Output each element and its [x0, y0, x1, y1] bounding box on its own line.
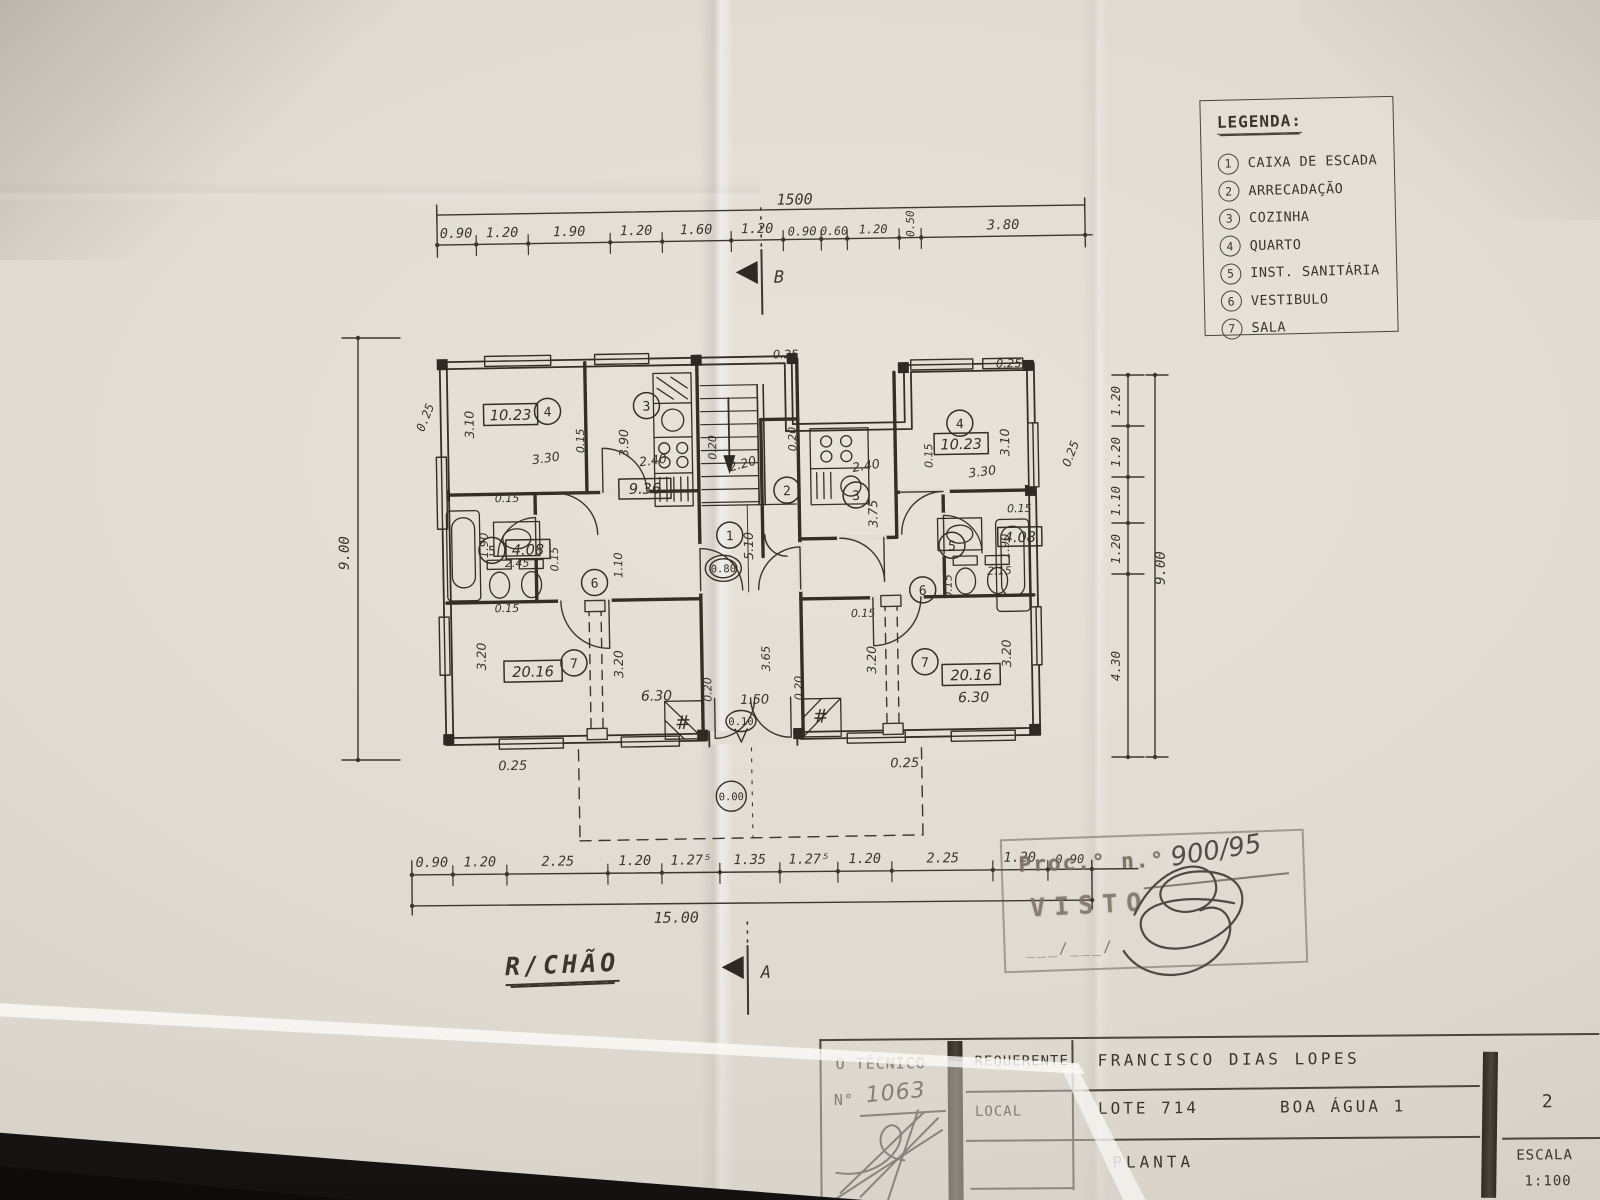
dim-label: 4.30 — [1108, 651, 1123, 681]
dim-label: 0.15 — [495, 492, 520, 505]
dim-label: 0.20 — [701, 677, 714, 702]
floor-label: R/CHÃO — [504, 948, 620, 986]
dim-label: 2.15 — [987, 564, 1012, 577]
room-area: 9.36 — [629, 481, 662, 498]
dim-label: 1.50 — [740, 693, 769, 709]
legend-item-label: SALA — [1251, 319, 1286, 336]
dim-label: 0.25 — [996, 356, 1022, 370]
legend-item: 6 VESTIBULO — [1221, 287, 1397, 312]
dim-label: 3.65 — [759, 646, 773, 672]
dim-label: 1.20 — [620, 223, 653, 240]
level-value: 0.00 — [719, 791, 745, 803]
room-number: 5 — [948, 539, 956, 554]
plan-dimension-labels: 3.10 0.15 3.30 3.90 2.40 0.15 1.90 2.45 … — [461, 342, 1088, 779]
dim-label: 0.15 — [495, 602, 520, 615]
dim-label: 0.90 — [440, 226, 473, 243]
room-number: 4 — [956, 417, 964, 432]
dim-label: 0.15 — [1007, 502, 1032, 515]
dim-label: 0.60 — [820, 224, 848, 238]
dim-label: 1.20 — [741, 221, 774, 238]
dim-label: 0.25 — [890, 756, 919, 772]
dim-label: 0.20 — [706, 435, 719, 460]
dim-label: 3.75 — [865, 500, 880, 528]
requerente-value: FRANCISCO DIAS LOPES — [1097, 1049, 1360, 1070]
dim-label: 9.00 — [1153, 551, 1169, 585]
right-dimension-chain: 1.20 1.20 1.10 1.20 4.30 9.00 — [1108, 373, 1169, 759]
dim-label: 0.15 — [574, 428, 587, 453]
dim-label: 2.40 — [851, 456, 881, 475]
legend-item: 7 SALA — [1221, 314, 1397, 339]
dim-label: 1.27⁵ — [788, 851, 829, 867]
room-number: 3 — [852, 489, 860, 504]
legend-item-number: 7 — [1221, 318, 1242, 339]
room-area: 10.23 — [940, 437, 982, 454]
room-area: 20.16 — [950, 668, 992, 685]
title-block-right-bar — [1481, 1052, 1498, 1198]
top-dimension-chain: 1500 0.90 1.20 1.90 1.20 1.60 1.20 0.90 … — [434, 186, 1093, 319]
dim-label: 0.15 — [851, 607, 876, 620]
scale-value: 1:100 — [1524, 1173, 1571, 1189]
dim-label: 9.00 — [337, 536, 353, 570]
dim-label: 0.90 — [788, 224, 817, 238]
hatch-hash: # — [675, 712, 691, 734]
dim-label: 6.30 — [641, 688, 673, 705]
dim-label: 1.10 — [1108, 486, 1123, 516]
dim-label: 3.30 — [967, 462, 996, 480]
legend-item: 3 COZINHA — [1219, 204, 1395, 229]
room-area: 20.16 — [512, 664, 554, 681]
dim-label: 0.90 — [415, 855, 448, 871]
dim-label: 1.20 — [1108, 386, 1123, 416]
legend-item-label: VESTIBULO — [1251, 291, 1329, 309]
dim-label: 0.25 — [773, 347, 799, 361]
dim-label: 3.10 — [997, 428, 1012, 456]
legend-item-number: 4 — [1219, 235, 1240, 256]
dim-label: 3.10 — [462, 411, 477, 439]
dim-label: 2.25 — [926, 850, 959, 866]
stamp-date-line: ___/___/ — [1025, 937, 1114, 958]
legend-item-number: 3 — [1219, 208, 1240, 229]
dim-label: 1500 — [776, 190, 812, 209]
level-value: 0.10 — [728, 716, 754, 728]
sheet-number: 2 — [1542, 1091, 1554, 1112]
dim-label: 1.90 — [553, 224, 586, 241]
dim-label: 0.50 — [904, 210, 917, 237]
room-number: 7 — [570, 657, 578, 672]
legend-item-label: COZINHA — [1249, 209, 1310, 226]
hatch-hash: # — [813, 705, 829, 727]
dim-label: 1.20 — [618, 853, 651, 869]
dim-label: 2.40 — [638, 451, 668, 470]
stamp-signature — [1102, 849, 1297, 996]
room-number: 6 — [591, 576, 599, 591]
level-value: 0.80 — [711, 563, 737, 575]
dim-label: 0.15 — [941, 574, 954, 599]
dim-label: 1.20 — [848, 851, 881, 867]
dim-label: 0.15 — [922, 443, 935, 468]
dim-label: 0.25 — [413, 401, 437, 433]
dim-label: 5.10 — [741, 532, 756, 560]
legend-item-label: QUARTO — [1249, 236, 1301, 253]
local-value-2: BOA ÁGUA 1 — [1280, 1096, 1406, 1116]
dim-label: 2.25 — [541, 854, 574, 870]
dim-label: 1.35 — [733, 852, 766, 868]
dim-label: 0.15 — [548, 547, 561, 572]
local-value: LOTE 714 — [1098, 1098, 1199, 1118]
legend-item-label: INST. SANITÁRIA — [1250, 262, 1380, 281]
dim-label: 3.20 — [999, 639, 1014, 667]
section-label: A — [760, 963, 771, 983]
legend-item-label: CAIXA DE ESCADA — [1248, 152, 1378, 171]
dim-label: 2.45 — [505, 557, 530, 570]
legend-item-label: ARRECADAÇÃO — [1248, 180, 1343, 198]
legend-title: LEGENDA: — [1217, 111, 1303, 135]
legend-box: LEGENDA: 1 CAIXA DE ESCADA 2 ARRECADAÇÃO… — [1199, 96, 1398, 336]
room-number: 4 — [544, 405, 552, 420]
dim-label: 0.25 — [498, 759, 527, 775]
dim-label: 1.20 — [486, 225, 519, 242]
legend-item-number: 5 — [1220, 263, 1241, 284]
section-marker-a: A — [721, 922, 771, 1014]
dim-label: 1.90 — [998, 533, 1012, 559]
dim-label: 3.20 — [611, 650, 626, 678]
scanned-floor-plan-page: 1500 0.90 1.20 1.90 1.20 1.60 1.20 0.90 … — [0, 0, 1600, 1200]
scale-label: ESCALA — [1516, 1147, 1573, 1163]
left-dimension-chain: 9.00 0.25 — [337, 336, 437, 762]
legend-item-number: 1 — [1218, 153, 1239, 174]
legend-item-number: 6 — [1221, 290, 1242, 311]
room-number: 2 — [783, 484, 791, 499]
room-area: 10.23 — [490, 408, 532, 425]
legend-item: 4 QUARTO — [1219, 232, 1395, 257]
dim-label: 1.20 — [463, 854, 496, 870]
legend-item: 2 ARRECADAÇÃO — [1218, 177, 1394, 202]
dim-label: 3.20 — [864, 646, 879, 674]
legend-item: 1 CAIXA DE ESCADA — [1218, 149, 1394, 174]
dim-label: 1.20 — [1108, 437, 1123, 467]
dim-label: 1.10 — [611, 552, 625, 578]
dim-label: 1.27⁵ — [670, 852, 711, 868]
building-plan: 4 3 5 6 7 1 2 3 4 5 6 7 10.23 9.36 4.08 … — [435, 342, 1089, 843]
dim-label: 3.30 — [531, 449, 561, 468]
room-number: 7 — [921, 656, 929, 671]
dim-label: 3.90 — [616, 429, 631, 457]
room-number: 3 — [642, 400, 650, 415]
approval-stamp: Proc.° n.° 900/95 VISTO ___/___/ — [1000, 829, 1308, 974]
dim-label: 6.30 — [958, 690, 990, 707]
dim-label: 1.20 — [859, 222, 888, 236]
dim-label: 0.20 — [792, 676, 805, 701]
dim-label: 0.25 — [1059, 439, 1082, 469]
scale-separator — [1502, 1137, 1600, 1139]
legend-item-number: 2 — [1218, 180, 1239, 201]
dim-label: 3.20 — [474, 642, 489, 670]
section-label: B — [774, 268, 785, 288]
room-number: 1 — [726, 529, 734, 544]
dim-label: 1.90 — [477, 533, 491, 559]
legend-item: 5 INST. SANITÁRIA — [1220, 259, 1396, 284]
dim-label: 0.20 — [786, 427, 799, 452]
dim-label: 1.20 — [1108, 534, 1123, 564]
dim-label: 15.00 — [654, 908, 699, 926]
dim-label: 3.80 — [986, 217, 1020, 234]
room-number: 6 — [919, 584, 927, 599]
dim-label: 1.60 — [680, 222, 713, 239]
